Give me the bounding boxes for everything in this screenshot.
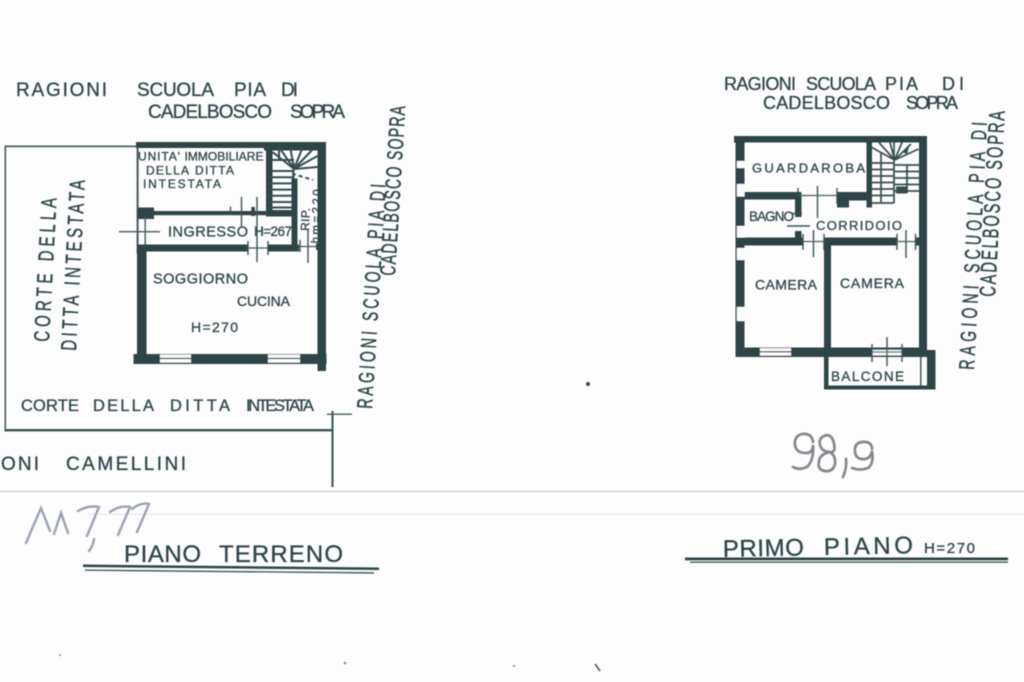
svg-text:PIANO: PIANO [824, 532, 914, 561]
svg-text:PIANO: PIANO [124, 541, 201, 568]
svg-text:TERRENO: TERRENO [219, 541, 343, 568]
svg-text:CUCINA: CUCINA [237, 293, 291, 309]
svg-text:SCUOLA: SCUOLA [137, 80, 214, 101]
svg-text:SOPRA: SOPRA [906, 93, 958, 113]
svg-text:H=270: H=270 [924, 540, 975, 557]
svg-text:SOGGIORNO: SOGGIORNO [153, 272, 248, 288]
svg-text:DI: DI [281, 80, 298, 101]
svg-text:CAMERA: CAMERA [755, 277, 818, 293]
svg-text:CORTE: CORTE [21, 397, 79, 415]
svg-text:DITTA: DITTA [170, 397, 230, 415]
svg-text:PIA: PIA [234, 80, 266, 101]
svg-text:PIA: PIA [885, 74, 918, 94]
svg-text:BALCONE: BALCONE [831, 369, 904, 384]
svg-text:INTESTATA: INTESTATA [143, 177, 221, 191]
svg-text:BAGNO: BAGNO [749, 209, 794, 224]
svg-text:SCUOLA: SCUOLA [806, 74, 876, 94]
svg-text:INGRESSO: INGRESSO [168, 225, 248, 241]
svg-text:CORRIDOIO: CORRIDOIO [816, 218, 902, 233]
svg-text:IMMOBILIARE: IMMOBILIARE [185, 150, 264, 164]
svg-text:DITTA: DITTA [195, 164, 234, 178]
svg-text:ONI: ONI [1, 454, 39, 475]
svg-text:SOPRA: SOPRA [290, 102, 345, 123]
svg-text:INTESTATA: INTESTATA [246, 397, 314, 415]
svg-text:H=267: H=267 [254, 224, 292, 239]
svg-text:CAMERA: CAMERA [840, 275, 905, 291]
svg-text:DI: DI [942, 74, 964, 94]
svg-text:DELLA: DELLA [146, 164, 189, 178]
svg-text:CADELBOSCO: CADELBOSCO [763, 93, 890, 113]
svg-text:RAGIONI: RAGIONI [724, 74, 796, 94]
svg-text:CAMELLINI: CAMELLINI [66, 454, 186, 475]
svg-text:UNITA': UNITA' [138, 150, 180, 164]
svg-text:CADELBOSCO: CADELBOSCO [148, 102, 272, 123]
svg-text:DELLA: DELLA [93, 397, 154, 415]
svg-text:H=270: H=270 [191, 319, 238, 335]
